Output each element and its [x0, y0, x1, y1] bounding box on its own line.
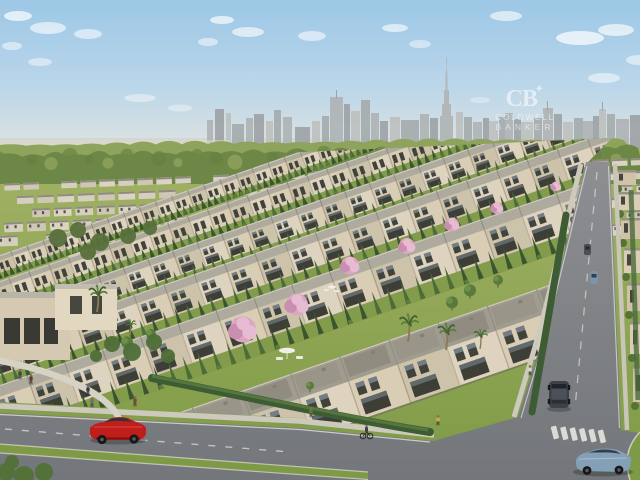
cloud: [210, 16, 234, 24]
garden-shrub: [143, 221, 157, 235]
person-shadow: [436, 424, 441, 426]
person-torso: [133, 398, 136, 402]
person-legs: [19, 375, 20, 378]
distant-window: [9, 238, 11, 241]
garden-shrub: [161, 349, 175, 363]
treeline-tree: [192, 149, 203, 160]
right-strip-tree: [625, 311, 633, 319]
person-torso: [90, 399, 93, 403]
cloud: [2, 42, 22, 50]
person-torso: [18, 371, 21, 375]
cyclist-head: [365, 425, 367, 427]
person-torso: [86, 387, 89, 391]
distant-window: [120, 208, 122, 211]
distant-window: [63, 210, 65, 213]
right-house-window: [627, 254, 631, 265]
person-legs: [91, 403, 92, 406]
person-shadow: [133, 405, 138, 407]
roadside-bush: [5, 455, 19, 469]
cloud: [490, 11, 522, 21]
distant-window: [37, 224, 39, 227]
right-house-roof: [616, 170, 636, 173]
distant-window: [0, 239, 2, 242]
distant-car-blue: [590, 271, 598, 284]
treeline-tree: [210, 152, 223, 165]
person-torso: [29, 376, 32, 380]
sun-lounger: [324, 289, 329, 291]
person-torso: [528, 367, 531, 371]
distant-window: [77, 210, 79, 213]
distant-window: [60, 223, 62, 226]
person-head: [30, 374, 33, 377]
person-shadow: [86, 394, 91, 396]
person-torso: [436, 417, 439, 421]
person-legs: [30, 380, 31, 383]
round-tree-light: [464, 285, 471, 292]
distant-window: [85, 209, 87, 212]
person-shadow: [309, 416, 314, 418]
garden-shrub: [49, 229, 67, 247]
watermark-monogram: CB✦: [482, 86, 568, 112]
treeline-tree: [63, 148, 78, 163]
person-head: [91, 397, 94, 400]
pink-blossom-top: [292, 294, 303, 305]
cyclist-torso: [365, 427, 368, 432]
aerial-development-render: CB✦ COLDWELL BANKER: [0, 0, 640, 480]
dark-suv: [547, 381, 571, 412]
treeline-tree: [152, 151, 167, 166]
person-head: [310, 407, 313, 410]
distant-window: [34, 211, 36, 214]
tower-antenna: [336, 90, 337, 99]
cloud: [4, 11, 32, 21]
cloud: [28, 58, 52, 66]
treeline-tree: [121, 148, 134, 161]
person-legs: [87, 391, 88, 394]
treeline-tree: [45, 157, 58, 170]
distant-window: [625, 188, 627, 191]
person-shadow: [90, 406, 95, 408]
garage-door: [4, 318, 20, 344]
cloud: [409, 40, 431, 48]
white-umbrella: [279, 348, 295, 354]
treeline-tree: [250, 149, 259, 158]
person-head: [134, 396, 137, 399]
watermark-brand-line2: BANKER: [482, 123, 568, 132]
person-torso: [309, 409, 312, 413]
person-legs: [88, 391, 89, 394]
cloud: [74, 29, 102, 39]
burj-khalifa-spire: [446, 57, 447, 65]
cloud: [382, 24, 408, 32]
distant-window: [14, 225, 16, 228]
corner-house-roof2: [55, 284, 117, 289]
round-tree-light: [121, 337, 128, 344]
distant-window: [6, 226, 8, 229]
sun-lounger: [276, 357, 283, 360]
treeline-tree: [85, 155, 94, 164]
person-head: [87, 385, 90, 388]
corner-house-upper: [55, 288, 117, 330]
garden-shrub: [120, 228, 136, 244]
right-house-window: [621, 197, 625, 205]
person-head: [529, 365, 532, 368]
person-legs: [135, 402, 136, 405]
pink-blossom-top: [237, 317, 250, 330]
distant-window: [99, 209, 101, 212]
person-legs: [438, 421, 439, 424]
person-shadow: [528, 374, 533, 376]
person-head: [437, 415, 440, 418]
star-icon: ✦: [535, 84, 542, 95]
right-house-window: [619, 174, 623, 181]
tower-antenna: [602, 102, 603, 111]
person-head: [19, 369, 22, 372]
pink-blossom-top: [494, 202, 500, 208]
distant-window: [637, 213, 639, 216]
person-legs: [311, 413, 312, 416]
person-shadow: [18, 378, 23, 380]
right-strip-tree: [622, 273, 630, 281]
pink-blossom-top: [449, 218, 456, 225]
garden-shrub: [146, 334, 162, 350]
cloud: [598, 24, 634, 36]
sun-lounger: [334, 290, 339, 292]
round-tree-light: [306, 382, 310, 386]
cloud: [232, 27, 264, 37]
corner-house-window: [70, 296, 82, 314]
pink-blossom-top: [554, 182, 559, 187]
round-tree-light: [493, 276, 499, 282]
person-legs: [31, 380, 32, 383]
distant-window: [107, 208, 109, 211]
watermark-logo: CB✦ COLDWELL BANKER: [482, 86, 568, 132]
garage-door: [24, 318, 40, 344]
distant-car-dark: [584, 244, 591, 255]
treeline-tree: [174, 158, 183, 167]
garden-shrub: [70, 222, 86, 238]
person-legs: [310, 413, 311, 416]
treeline-tree: [27, 154, 38, 165]
person-legs: [20, 375, 21, 378]
distant-window: [52, 224, 54, 227]
pink-blossom-top: [403, 238, 411, 246]
garden-shrub: [123, 343, 141, 361]
cloud: [124, 94, 156, 102]
person-legs: [529, 371, 530, 374]
garden-shrub: [80, 244, 96, 260]
scene-canvas: [0, 0, 640, 480]
right-house-window: [624, 223, 628, 232]
pink-blossom-top: [346, 257, 355, 266]
cloud: [556, 31, 604, 45]
person-legs: [92, 403, 93, 406]
treeline-tree: [228, 155, 243, 170]
treeline-tree: [103, 158, 114, 169]
distant-window: [56, 211, 58, 214]
distant-window: [42, 211, 44, 214]
cloud: [298, 31, 326, 41]
cloud: [30, 22, 66, 34]
person-shadow: [29, 383, 34, 385]
sun-lounger: [296, 356, 303, 359]
distant-window: [29, 225, 31, 228]
round-tree-light: [446, 297, 453, 304]
person-legs: [134, 402, 135, 405]
garden-shrub: [104, 336, 120, 352]
person-legs: [530, 371, 531, 374]
garden-shrub: [90, 350, 102, 362]
cloud: [198, 38, 218, 46]
cloud: [168, 105, 192, 112]
round-tree-light: [146, 330, 152, 336]
right-strip-tree: [631, 402, 639, 410]
cloud: [588, 73, 620, 83]
small-umbrella: [328, 285, 336, 288]
person-legs: [437, 421, 438, 424]
